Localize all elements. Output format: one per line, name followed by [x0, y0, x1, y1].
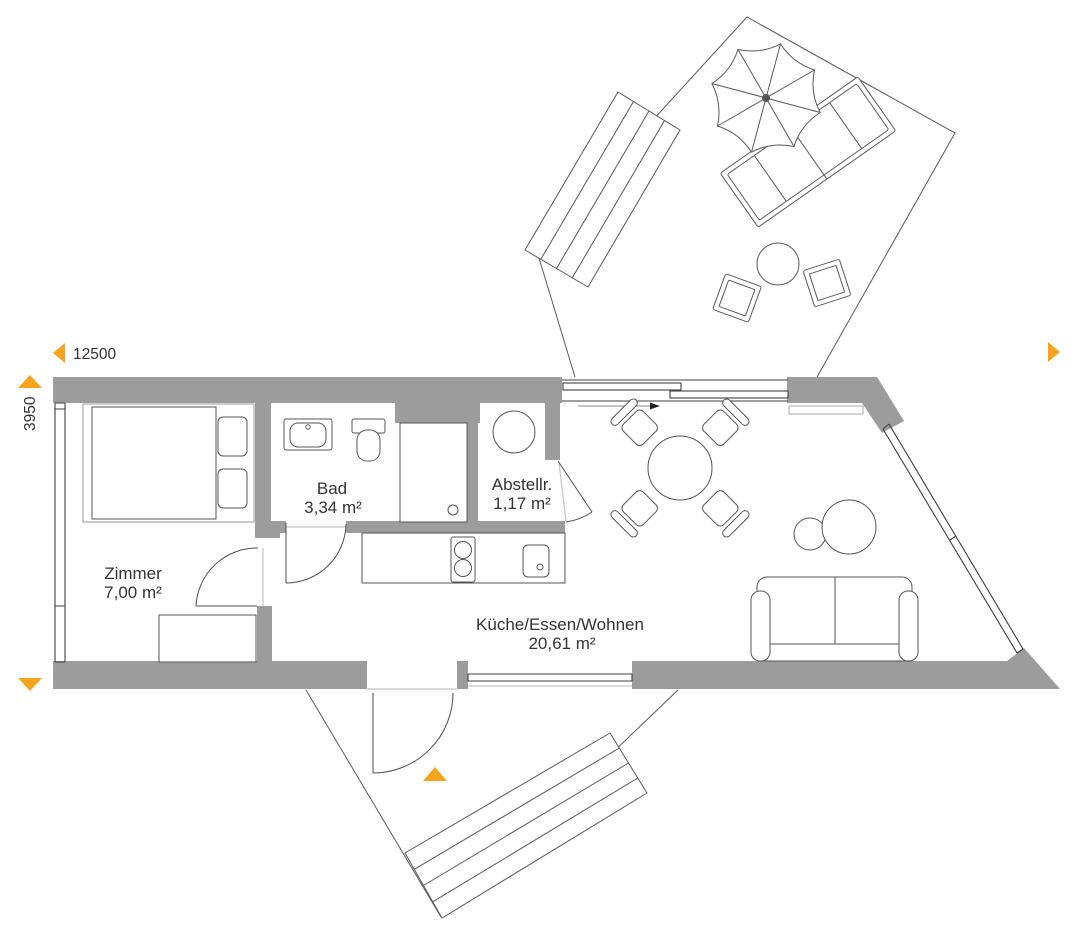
wall-zimmer-stub [257, 606, 272, 662]
window-sill [789, 406, 863, 414]
upper-terrace [525, 17, 955, 377]
sliding-door [562, 380, 788, 401]
floor-plan: 12500 3950 Zimmer 7,00 m² Bad 3,34 m² Ab… [0, 0, 1080, 941]
bad-door [286, 523, 346, 583]
room-area-bad: 3,34 m² [304, 498, 362, 517]
terrace-stool [713, 274, 762, 323]
room-label-kueche: Küche/Essen/Wohnen [476, 615, 644, 634]
dining-table [648, 436, 712, 500]
entrance-arrow-icon [423, 767, 447, 781]
abstell-door [558, 461, 592, 522]
shower [400, 423, 467, 522]
double-bed [83, 404, 254, 522]
dim-arrow-right-icon [1048, 342, 1060, 362]
room-label-bad: Bad [317, 479, 347, 498]
entrance-porch [306, 690, 678, 918]
coffee-table [794, 518, 826, 550]
zimmer-door [196, 548, 258, 606]
kitchen-sink [523, 545, 549, 577]
dim-height-label: 3950 [22, 396, 39, 431]
dim-arrow-left-icon [53, 343, 65, 363]
room-area-abstellraum: 1,17 m² [493, 494, 551, 513]
entrance-door-opening [367, 660, 457, 690]
sofa [751, 577, 918, 661]
washbasin [284, 419, 332, 450]
left-window [55, 403, 65, 662]
terrace-steps [525, 92, 680, 287]
dining-chair [698, 486, 750, 538]
room-area-zimmer: 7,00 m² [104, 583, 162, 602]
slide-direction-arrow [578, 403, 660, 410]
room-label-abstellraum: Abstellr. [492, 475, 552, 494]
terrace-table [757, 243, 799, 285]
dim-arrow-down-icon [18, 678, 42, 691]
cooktop [451, 537, 475, 582]
wall-bad-abstell [467, 403, 478, 522]
entrance-door [373, 693, 453, 773]
wall-abstell-stub [545, 403, 560, 460]
pillow [218, 417, 247, 456]
kitchen-counter [362, 533, 565, 583]
floor-plan-canvas: 12500 3950 Zimmer 7,00 m² Bad 3,34 m² Ab… [0, 0, 1080, 941]
dining-chair [698, 397, 750, 449]
toilet [352, 419, 385, 461]
room-area-kueche: 20,61 m² [528, 634, 595, 653]
room-label-zimmer: Zimmer [104, 564, 162, 583]
dining-set [609, 397, 750, 538]
dim-arrow-up-icon [18, 375, 42, 388]
dresser [159, 615, 256, 662]
dining-chair [609, 486, 661, 538]
wall-angled-top-right [787, 377, 904, 433]
terrace-stool [803, 259, 851, 307]
entrance-steps [405, 733, 647, 918]
coffee-table [822, 500, 876, 554]
dim-width-label: 12500 [73, 346, 116, 363]
wall-bad-bottom-left [270, 521, 286, 533]
washing-machine [493, 411, 535, 453]
wall-top [53, 377, 562, 403]
wall-bad-bottom [346, 521, 565, 533]
pillow [218, 469, 247, 508]
armrest [899, 591, 918, 661]
armrest [751, 591, 770, 661]
wall-zimmer-bad [255, 403, 271, 523]
